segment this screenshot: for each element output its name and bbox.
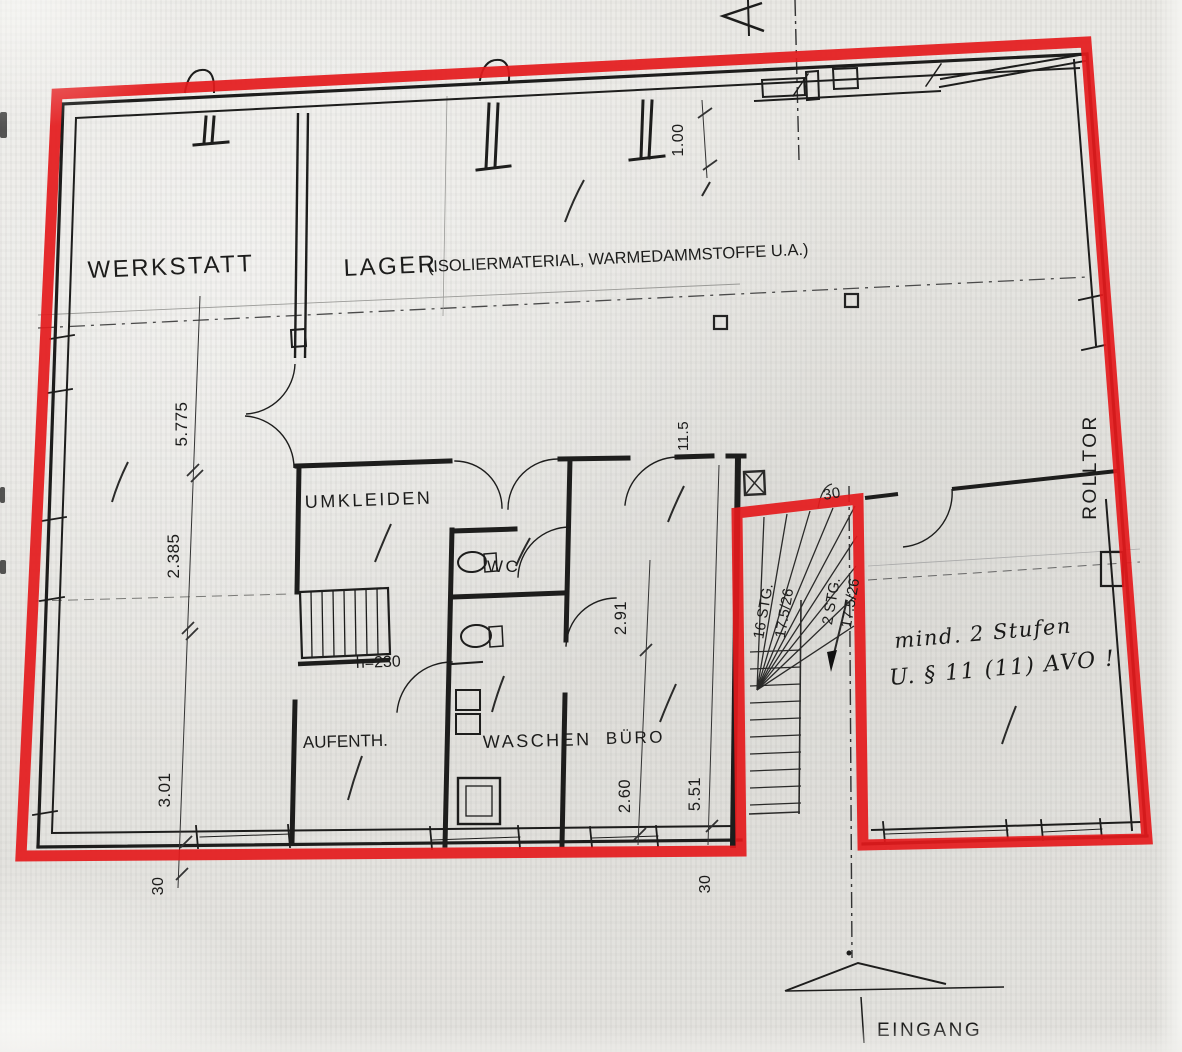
room-label-umkleiden: UMKLEIDEN xyxy=(304,488,432,512)
dim-30-stair: 30 xyxy=(822,484,842,504)
room-label-lager: LAGER xyxy=(343,251,438,282)
scanned-floor-plan: WERKSTATT LAGER (ISOLIERMATERIAL, WARMED… xyxy=(0,0,1182,1052)
dim-5775: 5.775 xyxy=(172,401,191,446)
handwritten-note-line2: U. § 11 (11) AVO ! xyxy=(888,646,1116,691)
stair-direction-arrowhead xyxy=(827,650,837,672)
dim-30-left: 30 xyxy=(150,877,167,896)
room-label-buero: BÜRO xyxy=(606,727,666,748)
fixtures xyxy=(456,551,503,824)
dim-100: 1.00 xyxy=(670,123,687,156)
dim-291: 2.91 xyxy=(612,601,630,635)
dim-2385: 2.385 xyxy=(164,533,183,578)
section-marker xyxy=(723,0,764,36)
floor-plan-drawing: WERKSTATT LAGER (ISOLIERMATERIAL, WARMED… xyxy=(0,0,1182,1052)
room-label-werkstatt: WERKSTATT xyxy=(87,250,255,284)
scan-artifacts xyxy=(0,112,7,574)
interior-stairs xyxy=(298,588,390,664)
note-clear-height: h=230 xyxy=(356,653,402,672)
room-label-aufenthalt: AUFENTH. xyxy=(303,731,388,752)
dim-301: 3.01 xyxy=(155,772,174,807)
room-label-wc: WC xyxy=(487,557,520,576)
top-wall-pillars xyxy=(185,54,1085,170)
room-label-eingang: EINGANG xyxy=(877,1020,982,1041)
dim-115: 11.5 xyxy=(675,421,692,451)
labels: WERKSTATT LAGER (ISOLIERMATERIAL, WARMED… xyxy=(87,123,1116,1041)
dim-30-bottom: 30 xyxy=(697,875,714,894)
dim-551: 5.51 xyxy=(686,777,704,811)
stairwell xyxy=(744,471,857,814)
dim-260: 2.60 xyxy=(616,779,634,813)
divider-wall xyxy=(245,113,308,468)
room-partitions xyxy=(292,456,744,845)
room-label-lager-detail: (ISOLIERMATERIAL, WARMEDAMMSTOFFE U.A.) xyxy=(427,241,808,276)
room-label-waschen: WASCHEN xyxy=(483,729,592,752)
handwritten-note-line1: mind. 2 Stufen xyxy=(893,614,1072,653)
room-label-rolltor: ROLLTOR xyxy=(1080,414,1101,520)
stair-label-main-size: 17.5/26 xyxy=(772,587,797,639)
